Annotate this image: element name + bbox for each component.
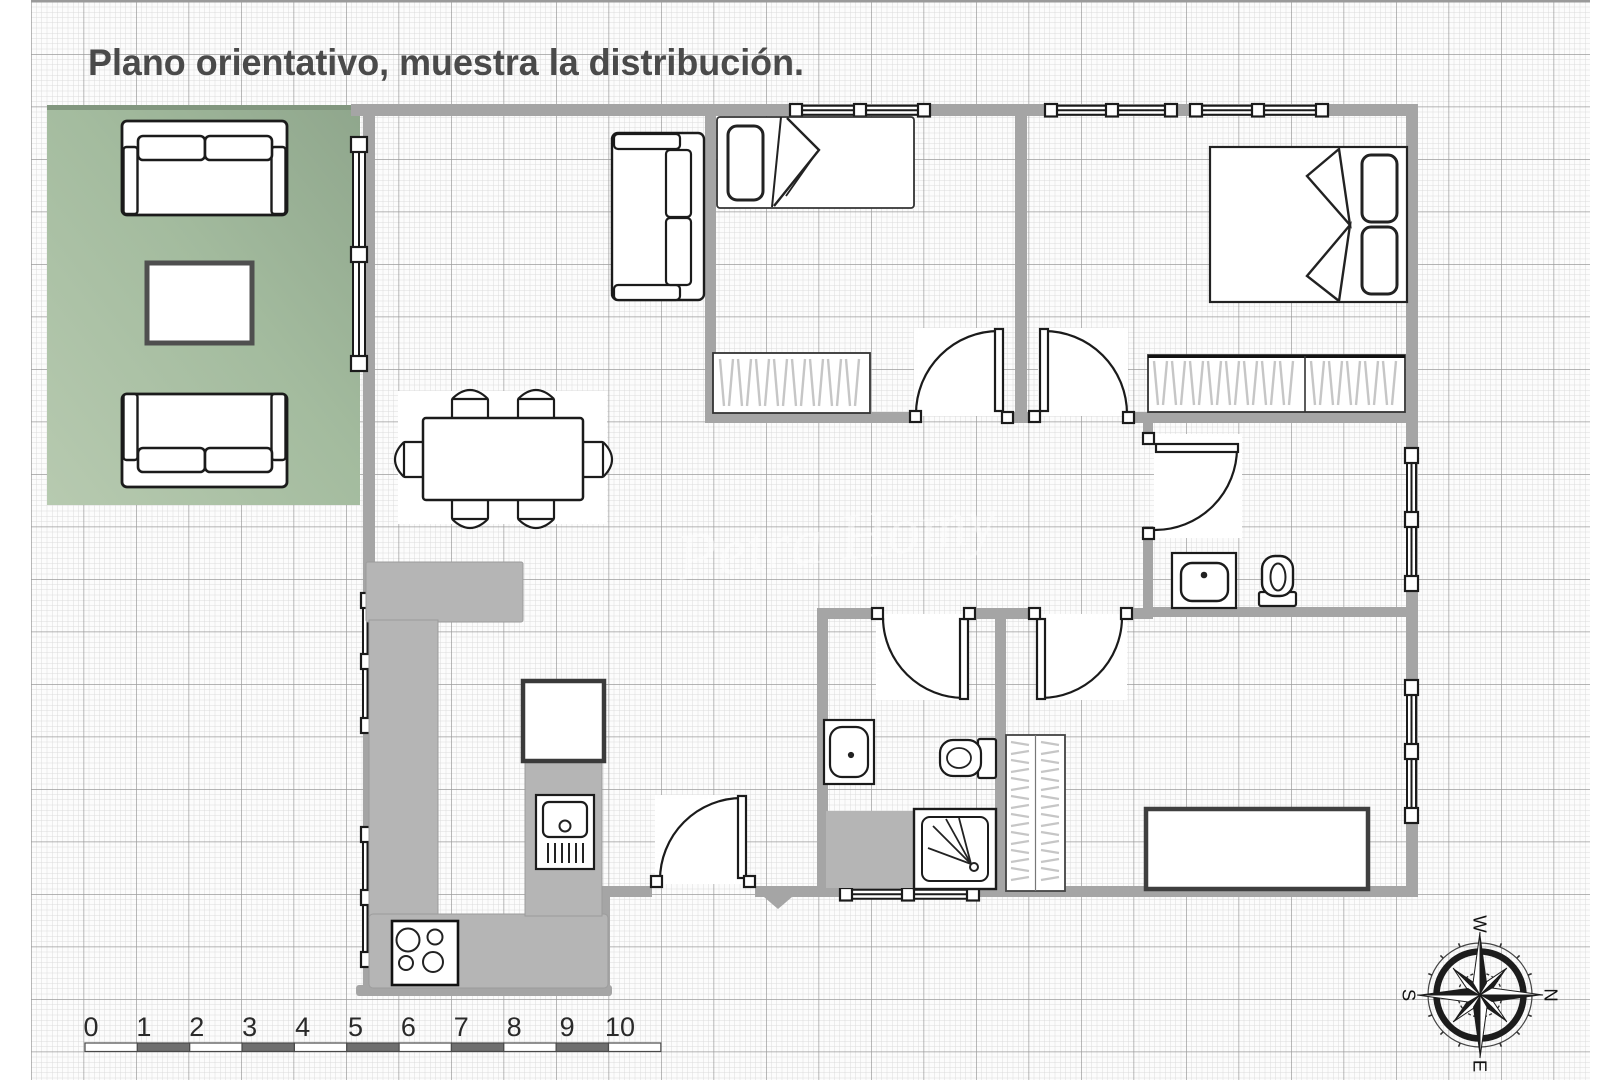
svg-text:10: 10	[605, 1012, 635, 1042]
svg-text:9: 9	[560, 1012, 575, 1042]
svg-text:1: 1	[136, 1012, 151, 1042]
svg-text:W: W	[1470, 915, 1491, 933]
svg-text:8: 8	[507, 1012, 522, 1042]
svg-text:N: N	[1541, 988, 1562, 1001]
svg-text:0: 0	[83, 1012, 98, 1042]
svg-text:E: E	[1470, 1060, 1491, 1072]
svg-text:7: 7	[454, 1012, 469, 1042]
svg-text:2: 2	[189, 1012, 204, 1042]
svg-text:S: S	[1399, 989, 1420, 1001]
svg-text:Plano orientativo, muestra la: Plano orientativo, muestra la distribuci…	[88, 42, 804, 83]
svg-text:4: 4	[295, 1012, 310, 1042]
svg-text:5: 5	[348, 1012, 363, 1042]
svg-text:3: 3	[242, 1012, 257, 1042]
svg-text:6: 6	[401, 1012, 416, 1042]
